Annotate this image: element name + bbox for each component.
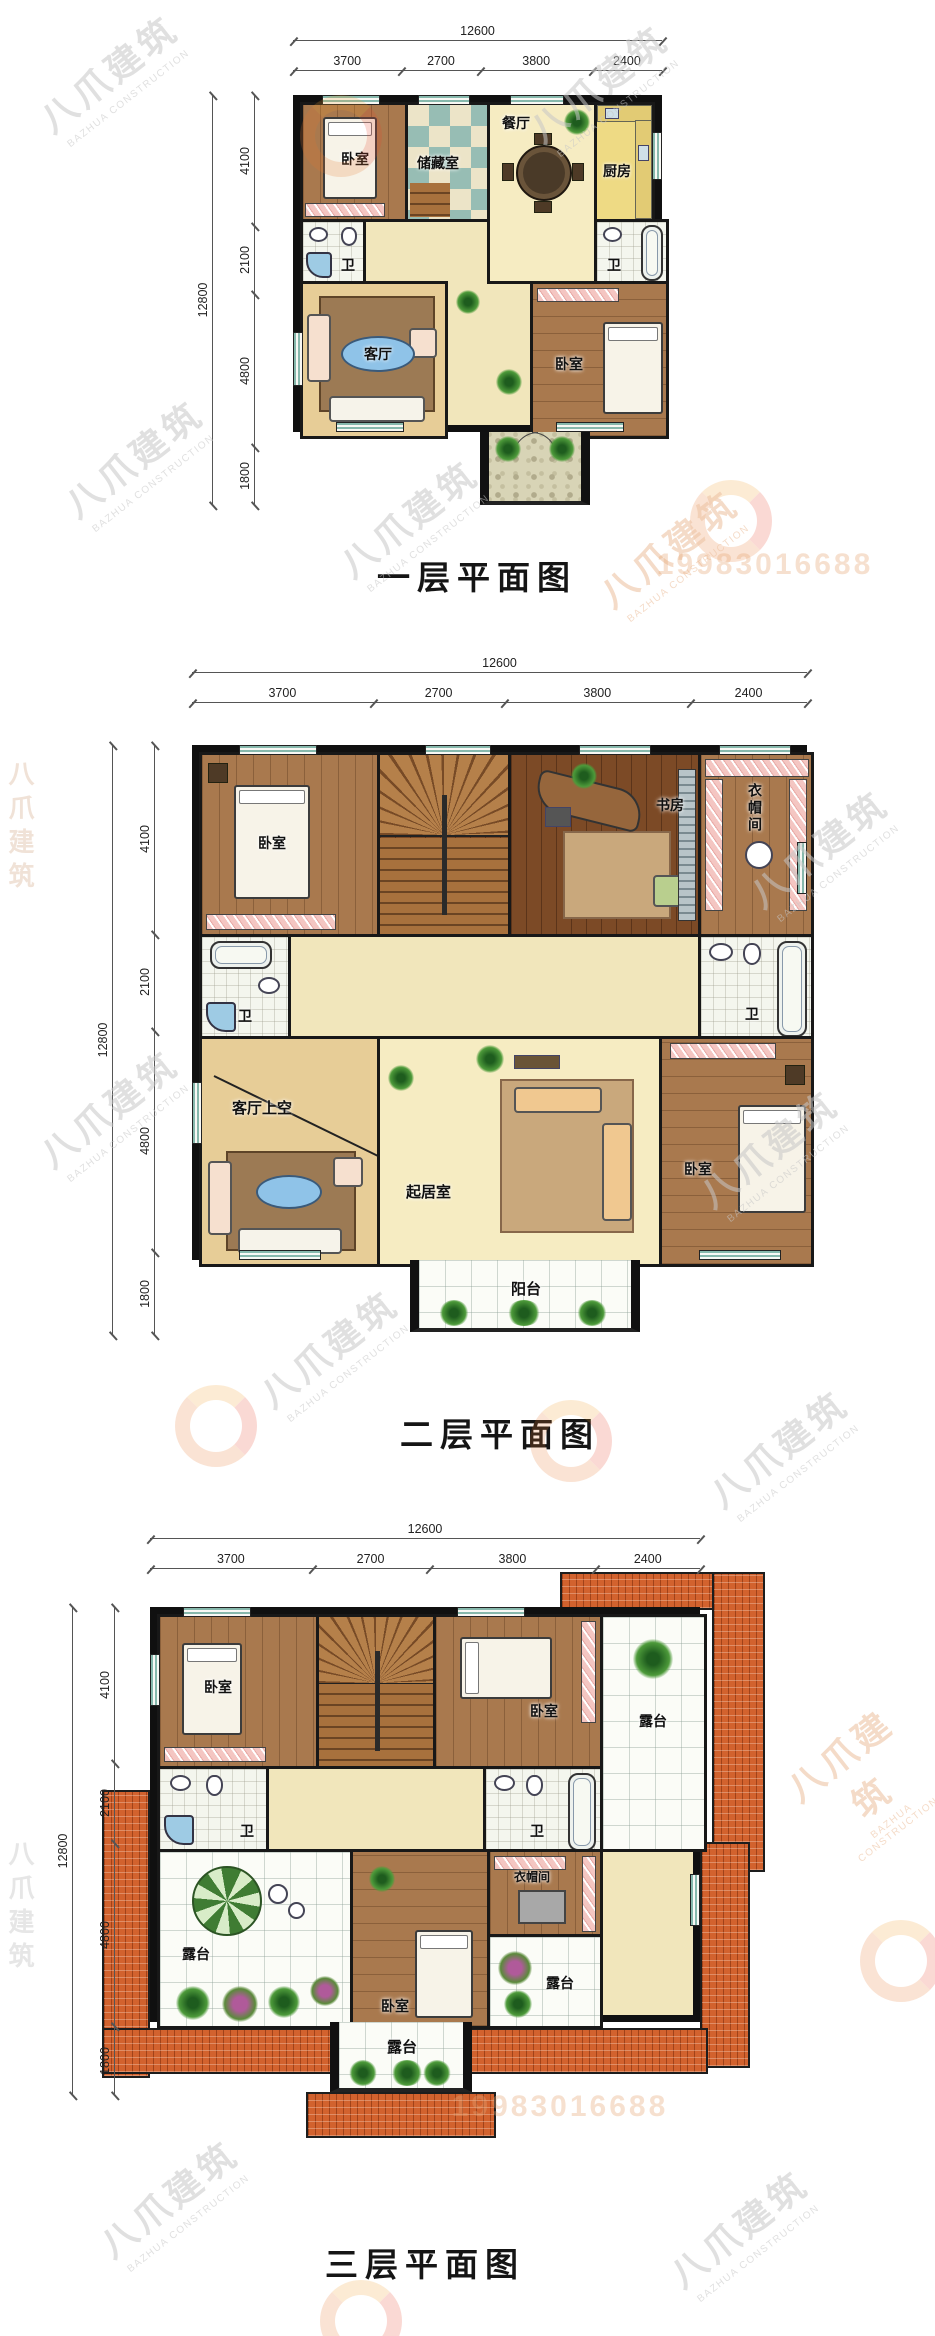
roof-right-upper bbox=[712, 1572, 765, 1872]
bathtub bbox=[641, 225, 663, 281]
f3-bath-right: 卫 bbox=[483, 1766, 603, 1852]
window bbox=[556, 422, 624, 432]
dim-label: 3700 bbox=[333, 54, 361, 68]
plant bbox=[176, 1986, 210, 2020]
f2-bedroom-bottomright: 卧室 bbox=[659, 1036, 814, 1267]
wardrobe bbox=[581, 1621, 596, 1723]
bathtub bbox=[210, 941, 272, 969]
sink bbox=[605, 108, 619, 119]
brand-logo-icon bbox=[175, 1385, 257, 1467]
window bbox=[652, 132, 662, 180]
window bbox=[719, 745, 791, 755]
f2-sitting-room: 起居室 bbox=[377, 1036, 662, 1267]
f3-dim-top-total: 12600 bbox=[150, 1538, 700, 1539]
dim-label: 4800 bbox=[138, 1128, 152, 1156]
f2-dim-left-segments: 4100 2100 4800 1800 bbox=[154, 745, 155, 1335]
roof-bottom-left bbox=[102, 2028, 337, 2074]
floor1-caption: 一层平面图 bbox=[377, 551, 577, 599]
f3-dim-left-total: 12800 bbox=[72, 1607, 73, 2095]
f3-bath-left: 卫 bbox=[157, 1766, 269, 1852]
patio-table bbox=[268, 1884, 288, 1904]
room-label: 卫 bbox=[530, 1821, 544, 1841]
bathtub bbox=[568, 1773, 596, 1851]
plant bbox=[369, 1866, 395, 1892]
window bbox=[192, 1082, 202, 1144]
plant bbox=[388, 1065, 414, 1091]
brand-watermark: 八爪建筑 BAZHUA CONSTRUCTION bbox=[657, 2156, 826, 2308]
brand-watermark-vertical: 八爪建筑 bbox=[2, 760, 39, 896]
f2-study: 书房 bbox=[508, 752, 701, 937]
toilet bbox=[743, 943, 761, 965]
wardrobe bbox=[582, 1856, 596, 1932]
f1-living: 客厅 bbox=[300, 281, 448, 439]
bookshelf bbox=[678, 769, 696, 921]
brand-watermark-vertical: 八爪建筑 bbox=[2, 1840, 39, 1976]
wardrobe bbox=[305, 203, 385, 217]
window bbox=[418, 95, 470, 105]
dim-label: 2700 bbox=[425, 686, 453, 700]
room-label: 衣帽间 bbox=[514, 1868, 550, 1885]
brand-watermark: 八爪建筑 BAZHUA CONSTRUCTION bbox=[52, 386, 221, 538]
brand-logo-icon bbox=[530, 1400, 612, 1482]
bush bbox=[549, 436, 575, 462]
room-label: 卫 bbox=[745, 1004, 759, 1024]
window bbox=[239, 745, 317, 755]
sofa bbox=[602, 1123, 632, 1221]
brand-logo-icon bbox=[320, 2280, 402, 2336]
sofa bbox=[307, 314, 331, 382]
dim-label: 2700 bbox=[357, 1552, 385, 1566]
bed bbox=[415, 1930, 473, 2018]
dim-label: 3700 bbox=[268, 686, 296, 700]
dim-label: 4800 bbox=[238, 357, 252, 385]
plant bbox=[423, 2060, 451, 2086]
floor3-plan: 卧室 卧室 露台 卫 卫 bbox=[150, 1607, 700, 2022]
flower-bed bbox=[222, 1986, 258, 2022]
chair bbox=[534, 201, 552, 213]
bench bbox=[518, 1890, 566, 1924]
dim-label: 2100 bbox=[138, 968, 152, 996]
brand-watermark: 八爪建筑 BAZHUA CONSTRUCTION bbox=[87, 2126, 256, 2278]
f1-storage: 储藏室 bbox=[405, 102, 490, 222]
room-label: 客厅 bbox=[364, 344, 392, 364]
room-label: 卫 bbox=[238, 1006, 252, 1026]
plant bbox=[504, 1990, 532, 2018]
dim-label: 1800 bbox=[98, 2047, 112, 2075]
window bbox=[579, 745, 651, 755]
flower-bed bbox=[310, 1976, 340, 2006]
dim-label: 1800 bbox=[238, 462, 252, 490]
chair bbox=[502, 163, 514, 181]
window bbox=[150, 1654, 160, 1706]
plant bbox=[268, 1986, 300, 2018]
shower bbox=[164, 1815, 194, 1845]
brand-logo-icon bbox=[300, 95, 382, 177]
window bbox=[183, 1607, 251, 1617]
wardrobe bbox=[670, 1043, 776, 1059]
coffee-table: 客厅 bbox=[341, 336, 415, 372]
window bbox=[797, 842, 807, 894]
room-label: 露台 bbox=[546, 1973, 574, 1993]
f1-dim-top-total: 12600 bbox=[293, 40, 662, 41]
room-label: 书房 bbox=[656, 795, 684, 815]
room-label: 露台 bbox=[387, 2036, 417, 2057]
window bbox=[690, 1874, 700, 1926]
bed-pillow bbox=[420, 1935, 468, 1949]
room-label: 露台 bbox=[182, 1944, 210, 1964]
dim-label: 1800 bbox=[138, 1280, 152, 1308]
umbrella bbox=[192, 1866, 262, 1936]
f1-dining: 餐厅 bbox=[487, 102, 597, 284]
f2-dim-top-segments: 3700 2700 3800 2400 bbox=[192, 702, 807, 703]
wardrobe bbox=[206, 914, 336, 930]
f3-cloakroom: 衣帽间 bbox=[487, 1849, 603, 1937]
f2-dim-left-total: 12800 bbox=[112, 745, 113, 1335]
computer bbox=[545, 807, 571, 827]
room-label: 衣帽间 bbox=[745, 783, 765, 834]
dim-label: 12600 bbox=[408, 1522, 443, 1536]
window bbox=[293, 332, 303, 386]
room-label: 卧室 bbox=[555, 354, 583, 374]
f2-living-void: 客厅上空 bbox=[199, 1036, 380, 1267]
phone-watermark: 19983016688 bbox=[452, 2090, 669, 2124]
chair bbox=[572, 163, 584, 181]
flower-bed bbox=[498, 1951, 532, 1985]
f3-staircase bbox=[316, 1614, 436, 1769]
dim-label: 2700 bbox=[427, 54, 455, 68]
f1-bath-right: 卫 bbox=[594, 219, 669, 284]
dim-label: 2400 bbox=[634, 1552, 662, 1566]
floor2-plan: 卧室 书房 衣帽间 卫 bbox=[192, 745, 807, 1260]
dim-label: 2100 bbox=[98, 1789, 112, 1817]
basin bbox=[709, 943, 733, 961]
f3-terrace-bottom: 露台 bbox=[330, 2022, 472, 2092]
bed-pillow bbox=[743, 1110, 801, 1124]
room-label: 卧室 bbox=[684, 1159, 712, 1179]
wardrobe bbox=[705, 779, 723, 911]
stool bbox=[745, 841, 773, 869]
plant bbox=[571, 763, 597, 789]
bed-pillow bbox=[465, 1642, 479, 1694]
plant bbox=[564, 109, 590, 135]
window bbox=[425, 745, 491, 755]
dim-label: 12800 bbox=[56, 1834, 70, 1869]
dim-label: 12800 bbox=[96, 1023, 110, 1058]
bush bbox=[495, 436, 521, 462]
f1-dim-top-segments: 3700 2700 3800 2400 bbox=[293, 70, 662, 71]
f1-bath-left: 卫 bbox=[300, 219, 366, 284]
window bbox=[336, 422, 404, 432]
room-label: 餐厅 bbox=[502, 113, 530, 133]
nightstand bbox=[208, 763, 228, 783]
room-label: 阳台 bbox=[511, 1278, 541, 1299]
basin bbox=[309, 227, 328, 242]
bed-pillow bbox=[239, 790, 305, 804]
room-label: 卧室 bbox=[381, 1996, 409, 2016]
dim-label: 2400 bbox=[613, 54, 641, 68]
dining-table bbox=[516, 145, 572, 201]
bed bbox=[738, 1105, 806, 1213]
basin bbox=[494, 1775, 515, 1791]
bed-pillow bbox=[187, 1648, 237, 1662]
stove bbox=[638, 145, 649, 161]
floor-plan-sheet: 12600 3700 2700 3800 2400 12800 4100 210… bbox=[0, 0, 935, 2336]
dim-label: 12600 bbox=[460, 24, 495, 38]
basin bbox=[258, 977, 280, 994]
f2-dim-top-total: 12600 bbox=[192, 672, 807, 673]
phone-watermark: 19983016688 bbox=[657, 548, 874, 582]
f1-dim-left-segments: 4100 2100 4800 1800 bbox=[254, 95, 255, 505]
f2-bath-left: 卫 bbox=[199, 934, 291, 1039]
dim-label: 4100 bbox=[98, 1671, 112, 1699]
dim-label: 3700 bbox=[217, 1552, 245, 1566]
f2-bath-right: 卫 bbox=[698, 934, 814, 1039]
roof-bottom-right bbox=[468, 2028, 708, 2074]
f1-bedroom-bottomright: 卧室 bbox=[530, 281, 669, 439]
window bbox=[699, 1250, 781, 1260]
armchair bbox=[333, 1157, 363, 1187]
sofa bbox=[514, 1087, 602, 1113]
shower bbox=[306, 252, 332, 278]
floor3-caption: 三层平面图 bbox=[325, 2238, 525, 2286]
bed bbox=[603, 322, 663, 414]
room-label: 卧室 bbox=[204, 1677, 232, 1697]
dim-label: 3800 bbox=[499, 1552, 527, 1566]
bed-pillow bbox=[608, 327, 658, 341]
dim-label: 12600 bbox=[482, 656, 517, 670]
plant bbox=[391, 2060, 423, 2086]
room-label: 起居室 bbox=[406, 1181, 451, 1202]
kitchen-counter bbox=[635, 120, 652, 219]
f3-bedroom-topcenter: 卧室 bbox=[433, 1614, 603, 1769]
room-label: 卧室 bbox=[258, 833, 286, 853]
f3-bedroom-topleft: 卧室 bbox=[157, 1614, 319, 1769]
plant bbox=[507, 1300, 541, 1326]
f3-dim-top-segments: 3700 2700 3800 2400 bbox=[150, 1568, 700, 1569]
f3-bedroom-bottomcenter: 卧室 bbox=[350, 1849, 490, 2029]
plant bbox=[349, 2060, 377, 2086]
room-label: 厨房 bbox=[603, 161, 631, 181]
basin bbox=[603, 227, 622, 242]
brand-watermark: 八爪建筑 BAZHUA CONSTRUCTION bbox=[697, 1376, 866, 1528]
room-label: 露台 bbox=[639, 1711, 667, 1731]
plant bbox=[476, 1045, 504, 1073]
dim-label: 2400 bbox=[735, 686, 763, 700]
dim-label: 4100 bbox=[238, 147, 252, 175]
bathtub bbox=[777, 941, 807, 1037]
dim-label: 2100 bbox=[238, 246, 252, 274]
dim-label: 4800 bbox=[98, 1921, 112, 1949]
nightstand bbox=[785, 1065, 805, 1085]
f1-dim-left-total: 12800 bbox=[212, 95, 213, 505]
room-label: 卧室 bbox=[530, 1701, 558, 1721]
plant bbox=[496, 369, 522, 395]
room-label: 卫 bbox=[607, 255, 621, 275]
wardrobe bbox=[164, 1747, 266, 1762]
plant bbox=[439, 1300, 469, 1326]
toilet bbox=[341, 227, 357, 246]
stairs bbox=[410, 183, 450, 217]
f3-terrace-bottomright: 露台 bbox=[487, 1934, 603, 2029]
room-label: 客厅上空 bbox=[232, 1097, 292, 1118]
chair bbox=[534, 133, 552, 145]
brand-watermark: 八爪建筑 BAZHUA CONSTRUCTION bbox=[247, 1276, 416, 1428]
stair-rail bbox=[442, 795, 447, 915]
room-label: 卫 bbox=[240, 1821, 254, 1841]
f1-kitchen: 厨房 bbox=[594, 102, 655, 222]
bed bbox=[460, 1637, 552, 1699]
brand-logo-icon bbox=[860, 1920, 935, 2002]
tv-cabinet bbox=[514, 1055, 560, 1069]
window bbox=[457, 1607, 525, 1617]
sofa bbox=[329, 396, 425, 422]
f1-entrance-porch bbox=[480, 432, 590, 505]
plant bbox=[456, 290, 480, 314]
f3-terrace-topright: 露台 bbox=[600, 1614, 707, 1852]
f2-balcony: 阳台 bbox=[410, 1260, 640, 1332]
brand-watermark: 八爪建筑 BAZHUA CONSTRUCTION bbox=[766, 1689, 935, 1879]
plant bbox=[633, 1639, 673, 1679]
f3-dim-left-segments: 4100 2100 4800 1800 bbox=[114, 1607, 115, 2095]
coffee-table bbox=[256, 1175, 322, 1209]
plant bbox=[577, 1300, 607, 1326]
wardrobe bbox=[537, 288, 619, 302]
stair-rail bbox=[375, 1651, 380, 1751]
shower bbox=[206, 1002, 236, 1032]
window bbox=[510, 95, 564, 105]
f2-staircase bbox=[377, 752, 511, 937]
room-label: 卫 bbox=[341, 255, 355, 275]
sofa bbox=[208, 1161, 232, 1235]
toilet bbox=[526, 1775, 543, 1796]
room-label: 储藏室 bbox=[417, 153, 459, 173]
patio-chair bbox=[288, 1902, 305, 1919]
dim-label: 12800 bbox=[196, 283, 210, 318]
wardrobe bbox=[705, 759, 809, 777]
window bbox=[239, 1250, 321, 1260]
basin bbox=[170, 1775, 191, 1791]
f3-terrace-bottomleft: 露台 bbox=[157, 1849, 353, 2029]
dim-label: 3800 bbox=[583, 686, 611, 700]
toilet bbox=[206, 1775, 223, 1796]
brand-watermark: 八爪建筑 BAZHUA CONSTRUCTION bbox=[27, 1, 196, 153]
f2-bedroom-topleft: 卧室 bbox=[199, 752, 380, 937]
dim-label: 4100 bbox=[138, 825, 152, 853]
dim-label: 3800 bbox=[522, 54, 550, 68]
